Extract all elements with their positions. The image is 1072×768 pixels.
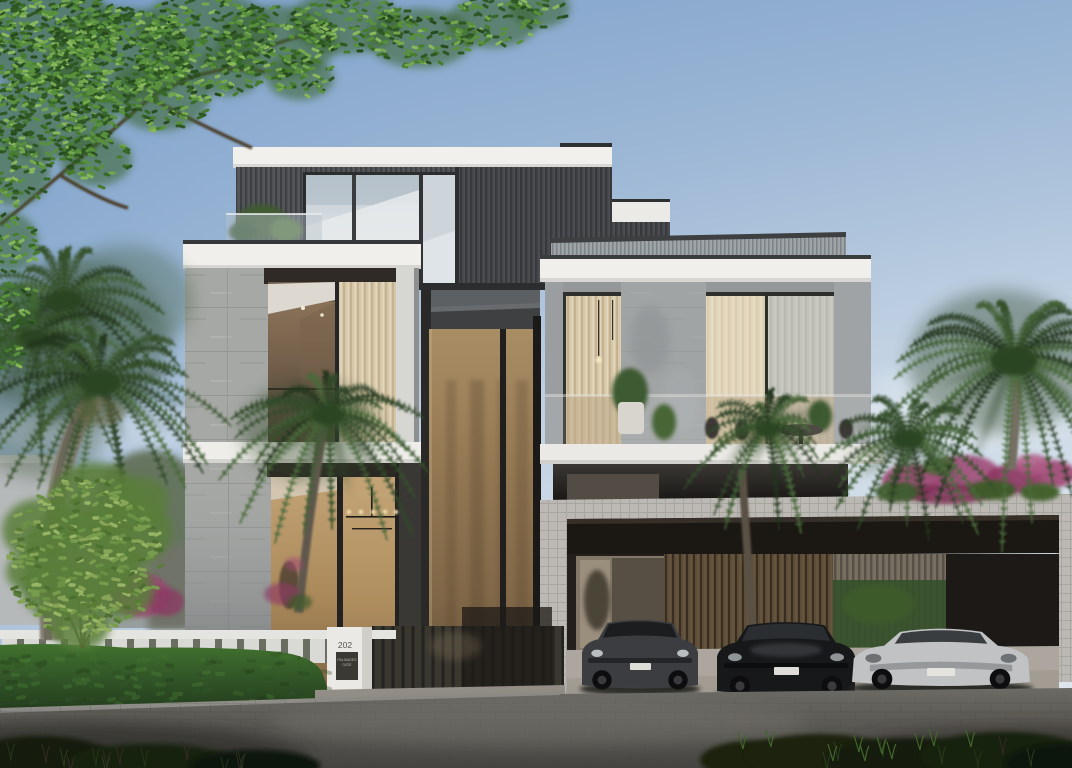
svg-text:GATE: GATE (342, 663, 352, 667)
svg-text:PALISADES: PALISADES (337, 658, 357, 662)
svg-text:202: 202 (338, 640, 352, 650)
